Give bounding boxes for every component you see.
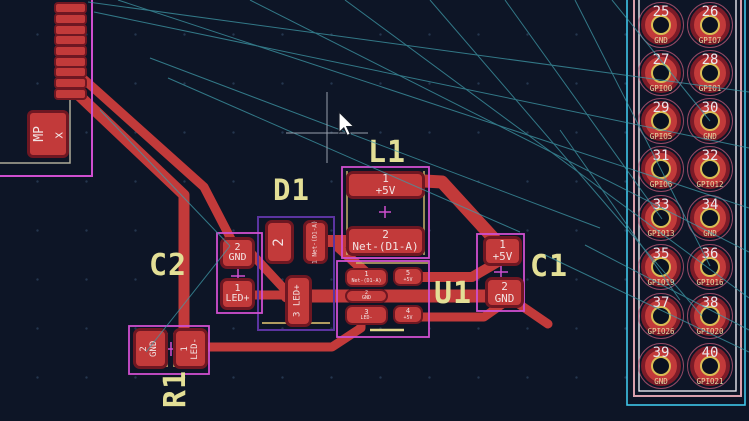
pad-C1-1[interactable]: 1 +5V: [483, 236, 522, 266]
pad-C2-1[interactable]: 1 LED+: [220, 278, 255, 310]
pad-pin-34[interactable]: 34GND: [687, 195, 733, 241]
pad-U1-1[interactable]: 1 Net-(D1-A): [345, 268, 388, 287]
pad-C1-2[interactable]: 2 GND: [485, 277, 524, 308]
pad-D1-1[interactable]: 1 Net-(D1-A): [303, 220, 328, 264]
trace-led-r1[interactable]: [68, 85, 184, 346]
pad-pin-37[interactable]: 37GPIO26: [638, 293, 684, 339]
reference-C1[interactable]: C1: [530, 252, 568, 282]
reference-D1[interactable]: D1: [273, 176, 310, 205]
pad-pin-25[interactable]: 25GND: [638, 2, 684, 48]
pcb-editor-canvas[interactable]: MP x L1 1 +5V 2 Net-(D1-A) D1 2 1 Net-(D…: [0, 0, 749, 421]
pad-mp-net: x: [52, 132, 65, 139]
pad-pin-33[interactable]: 33GPIO13: [638, 195, 684, 241]
ffc-pad[interactable]: [54, 88, 87, 100]
pad-R1-1[interactable]: 1LED-: [173, 328, 208, 369]
reference-L1[interactable]: L1: [368, 138, 406, 168]
reference-R1[interactable]: R1: [161, 370, 191, 408]
pad-U1-2[interactable]: 2 GND: [345, 289, 388, 303]
reference-U1[interactable]: U1: [434, 279, 472, 309]
pad-mp-label: MP: [33, 126, 47, 142]
trace-r1-u1[interactable]: [191, 313, 361, 347]
pad-pin-40[interactable]: 40GPIO21: [687, 343, 733, 389]
silkscreen-outlines: [0, 0, 745, 405]
pad-U1-4[interactable]: 4 +5V: [393, 305, 423, 324]
pad-pin-31[interactable]: 31GPIO6: [638, 146, 684, 192]
crosshair: [286, 92, 368, 163]
pad-L1-1[interactable]: 1 +5V: [346, 171, 425, 199]
pad-pin-29[interactable]: 29GPIO5: [638, 98, 684, 144]
pad-pin-26[interactable]: 26GPIO7: [687, 2, 733, 48]
pad-U1-5[interactable]: 5 +5V: [393, 267, 423, 286]
trace-gnd-c2[interactable]: [78, 74, 233, 243]
pad-pin-28[interactable]: 28GPIO1: [687, 50, 733, 96]
pad-R1-2[interactable]: 2GND: [133, 328, 168, 369]
pad-pin-35[interactable]: 35GPIO19: [638, 244, 684, 290]
pad-pin-39[interactable]: 39GND: [638, 343, 684, 389]
pad-mp[interactable]: MP x: [27, 110, 69, 158]
pad-D1-2[interactable]: 2: [265, 220, 294, 264]
pad-pin-32[interactable]: 32GPIO12: [687, 146, 733, 192]
pad-D1-3[interactable]: 3 LED+: [285, 275, 312, 327]
pad-pin-38[interactable]: 38GPIO20: [687, 293, 733, 339]
pad-L1-2[interactable]: 2 Net-(D1-A): [346, 226, 425, 256]
pad-pin-30[interactable]: 30GND: [687, 98, 733, 144]
reference-C2[interactable]: C2: [149, 251, 187, 281]
mouse-cursor-icon: [339, 112, 354, 136]
pad-C2-2[interactable]: 2 GND: [220, 237, 255, 269]
pad-U1-3[interactable]: 3 LED-: [345, 305, 388, 325]
pad-pin-36[interactable]: 36GPIO16: [687, 244, 733, 290]
pad-pin-27[interactable]: 27GPIO0: [638, 50, 684, 96]
